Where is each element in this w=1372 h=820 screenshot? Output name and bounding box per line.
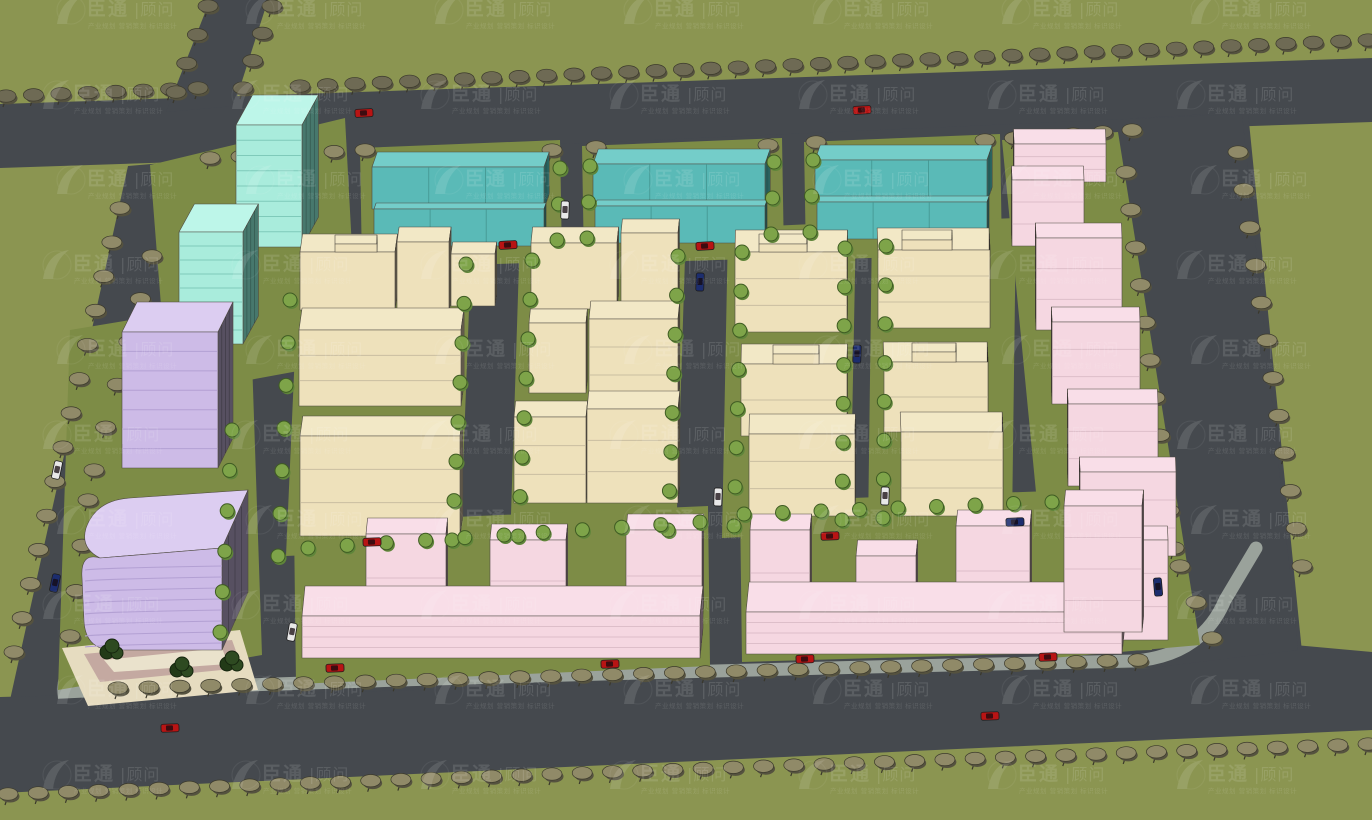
rooftop-cube-facade xyxy=(759,244,807,252)
tree-canopy xyxy=(391,773,411,785)
tree-canopy xyxy=(1328,739,1348,751)
terrace-block-roof xyxy=(1051,307,1140,322)
tree-canopy xyxy=(271,549,285,563)
tree-canopy xyxy=(166,86,186,98)
factory-block-roof xyxy=(621,219,679,233)
tree-canopy xyxy=(947,51,967,63)
workshop-hall-roof xyxy=(372,152,549,167)
car-cabin xyxy=(562,206,567,213)
tree-canopy xyxy=(1126,241,1146,253)
office-slab-roof xyxy=(122,302,233,332)
tree-canopy xyxy=(662,484,676,498)
car-cabin xyxy=(360,110,367,116)
tree-canopy xyxy=(243,54,263,66)
tree-canopy xyxy=(550,233,564,247)
tree-canopy xyxy=(1298,740,1318,752)
tree-canopy xyxy=(930,500,944,514)
rooftop-cube-facade xyxy=(773,354,819,364)
tree-canopy xyxy=(670,288,684,302)
tree-canopy xyxy=(878,317,892,331)
car xyxy=(714,488,723,506)
tree-canopy xyxy=(572,767,592,779)
site-plan-rendering: 臣通 |顾问 产业规划 营销策划 标识设计 xyxy=(0,0,1372,820)
tree-canopy xyxy=(340,538,354,552)
car-cabin xyxy=(801,656,808,661)
tree-canopy xyxy=(1045,495,1059,509)
tree-canopy xyxy=(523,292,537,306)
tree-canopy xyxy=(1331,35,1351,47)
tree-canopy xyxy=(784,759,804,771)
factory-block-roof xyxy=(299,308,464,330)
terrace-block-roof xyxy=(1013,129,1106,144)
factory-block xyxy=(531,227,619,309)
tree-canopy xyxy=(1170,560,1190,572)
rooftop-cube-roof xyxy=(902,230,952,240)
tree-canopy xyxy=(1251,296,1271,308)
tree-canopy xyxy=(803,225,817,239)
rooftop-cube xyxy=(773,345,819,364)
tree-canopy xyxy=(37,509,57,521)
factory-block-facade xyxy=(901,432,1003,516)
car xyxy=(601,660,619,669)
tree-canopy xyxy=(788,663,808,675)
tree-canopy xyxy=(215,585,229,599)
tree-canopy xyxy=(935,753,955,765)
rooftop-cube xyxy=(335,235,377,252)
terrace-block-roof xyxy=(1067,389,1158,404)
car-cabin xyxy=(701,243,708,249)
rooftop-cube-roof xyxy=(773,345,819,354)
car-cabin xyxy=(606,661,613,666)
tree-canopy xyxy=(726,665,746,677)
tree-canopy xyxy=(756,60,776,72)
tree-canopy xyxy=(603,668,623,680)
tree-canopy xyxy=(517,411,531,425)
factory-block-roof xyxy=(529,309,587,323)
tree-canopy xyxy=(61,407,81,419)
tree-canopy xyxy=(881,661,901,673)
tree-canopy xyxy=(735,245,749,259)
tree-canopy xyxy=(457,296,471,310)
car xyxy=(1153,578,1163,597)
tree-canopy xyxy=(776,506,790,520)
tree-canopy xyxy=(665,406,679,420)
factory-block-facade xyxy=(531,243,617,309)
tree-canopy xyxy=(575,523,589,537)
rooftop-cube-roof xyxy=(335,235,377,244)
tree-canopy xyxy=(943,659,963,671)
car-cabin xyxy=(1155,583,1161,590)
tree-canopy xyxy=(975,50,995,62)
tree-canopy xyxy=(84,464,104,476)
tree-canopy xyxy=(572,669,592,681)
tree-canopy xyxy=(0,788,18,800)
tree-canopy xyxy=(767,155,781,169)
tree-canopy xyxy=(78,494,98,506)
rooftop-cube-facade xyxy=(335,244,377,252)
tree-canopy xyxy=(400,75,420,87)
tree-canopy xyxy=(361,774,381,786)
tree-canopy xyxy=(1276,37,1296,49)
row-corner-tower-roof xyxy=(1064,490,1144,506)
tree-canopy xyxy=(324,145,344,157)
tree-canopy xyxy=(695,666,715,678)
tree-canopy xyxy=(1207,743,1227,755)
tree-canopy xyxy=(1122,124,1142,136)
tree-canopy xyxy=(973,658,993,670)
tree-canopy xyxy=(1116,747,1136,759)
terrace-block-roof xyxy=(1035,223,1122,238)
tree-canopy xyxy=(968,498,982,512)
tree-canopy xyxy=(1237,742,1257,754)
tree-canopy xyxy=(110,202,130,214)
tree-canopy xyxy=(1221,40,1241,52)
tree-canopy xyxy=(279,378,293,392)
tree-canopy xyxy=(519,371,533,385)
tree-canopy xyxy=(218,544,232,558)
rendering-canvas: 臣通 |顾问 产业规划 营销策划 标识设计 xyxy=(0,0,1372,820)
tree-canopy xyxy=(1146,746,1166,758)
factory-block-roof xyxy=(397,227,451,242)
tree-canopy xyxy=(1202,632,1222,644)
car xyxy=(696,242,714,251)
tree-canopy xyxy=(728,61,748,73)
tree-canopy xyxy=(766,191,780,205)
car-cabin xyxy=(986,713,993,718)
tree-canopy xyxy=(542,768,562,780)
tree-canopy xyxy=(419,533,433,547)
tree-canopy xyxy=(232,678,252,690)
tree-canopy xyxy=(1002,49,1022,61)
tree-canopy xyxy=(728,480,742,494)
tree-canopy xyxy=(701,62,721,74)
tree-canopy xyxy=(1112,44,1132,56)
tree-canopy xyxy=(12,612,32,624)
tree-canopy xyxy=(60,630,80,642)
tree-canopy xyxy=(509,70,529,82)
tree-canopy xyxy=(536,69,556,81)
tree-canopy xyxy=(837,319,851,333)
car xyxy=(355,109,373,118)
tree-canopy xyxy=(86,304,106,316)
car-cabin xyxy=(1044,654,1051,659)
car xyxy=(796,655,814,664)
car xyxy=(981,712,999,721)
tree-canopy xyxy=(225,651,239,665)
tree-canopy xyxy=(582,195,596,209)
tree-canopy xyxy=(733,323,747,337)
tree-canopy xyxy=(754,760,774,772)
tree-canopy xyxy=(175,657,189,671)
tree-canopy xyxy=(1140,354,1160,366)
car xyxy=(1039,653,1057,662)
tree-canopy xyxy=(729,441,743,455)
tree-canopy xyxy=(1228,146,1248,158)
tree-canopy xyxy=(1139,43,1159,55)
row-raised-section-roof xyxy=(856,540,918,556)
tree-canopy xyxy=(673,63,693,75)
tree-canopy xyxy=(28,543,48,555)
tree-canopy xyxy=(553,161,567,175)
tree-canopy xyxy=(213,625,227,639)
tree-canopy xyxy=(646,64,666,76)
workshop-hall-annex-roof xyxy=(374,203,546,209)
car xyxy=(161,724,179,733)
tree-canopy xyxy=(200,152,220,164)
tree-canopy xyxy=(1029,48,1049,60)
tree-canopy xyxy=(355,144,375,156)
tree-canopy xyxy=(379,536,393,550)
workshop-hall-roof xyxy=(815,145,992,160)
tree-canopy xyxy=(879,239,893,253)
tree-canopy xyxy=(20,577,40,589)
car-cabin xyxy=(715,493,720,500)
tree-canopy xyxy=(1263,372,1283,384)
tree-canopy xyxy=(417,673,437,685)
tree-canopy xyxy=(1267,741,1287,753)
workshop-hall-annex-roof xyxy=(595,200,767,206)
tree-canopy xyxy=(102,236,122,248)
tree-canopy xyxy=(850,661,870,673)
tree-canopy xyxy=(1097,655,1117,667)
tree-canopy xyxy=(865,55,885,67)
car-cabin xyxy=(504,242,511,248)
car xyxy=(561,201,570,219)
car-cabin xyxy=(882,492,887,499)
car xyxy=(881,487,890,505)
tree-canopy xyxy=(1292,560,1312,572)
rooftop-cube-facade xyxy=(902,240,952,250)
tree-canopy xyxy=(23,89,43,101)
tree-canopy xyxy=(201,679,221,691)
tree-canopy xyxy=(876,472,890,486)
tree-canopy xyxy=(0,90,16,102)
tree-canopy xyxy=(453,375,467,389)
tree-canopy xyxy=(734,284,748,298)
tree-canopy xyxy=(188,82,208,94)
tree-canopy xyxy=(252,27,272,39)
tree-canopy xyxy=(591,67,611,79)
tree-canopy xyxy=(445,533,459,547)
tree-canopy xyxy=(283,293,297,307)
tree-canopy xyxy=(177,57,197,69)
car-cabin xyxy=(166,725,173,730)
tree-canopy xyxy=(810,57,830,69)
rooftop-cube xyxy=(902,230,952,250)
tree-canopy xyxy=(210,780,230,792)
tree-canopy xyxy=(1004,657,1024,669)
tree-canopy xyxy=(198,0,218,12)
tree-canopy xyxy=(187,28,207,40)
tree-canopy xyxy=(892,54,912,66)
tree-canopy xyxy=(1066,655,1086,667)
tree-canopy xyxy=(1194,41,1214,53)
tree-canopy xyxy=(275,464,289,478)
tree-canopy xyxy=(783,59,803,71)
tree-canopy xyxy=(838,56,858,68)
tree-canopy xyxy=(912,660,932,672)
tree-canopy xyxy=(1248,39,1268,51)
tree-canopy xyxy=(4,646,24,658)
tree-canopy xyxy=(220,504,234,518)
tree-canopy xyxy=(1269,409,1289,421)
car-cabin xyxy=(368,539,375,544)
tree-canopy xyxy=(806,153,820,167)
factory-block-roof xyxy=(531,227,619,243)
tree-canopy xyxy=(223,463,237,477)
tree-canopy xyxy=(1056,749,1076,761)
tree-canopy xyxy=(386,674,406,686)
tree-canopy xyxy=(513,490,527,504)
tree-canopy xyxy=(1057,47,1077,59)
tree-canopy xyxy=(105,639,119,653)
tree-canopy xyxy=(835,474,849,488)
tree-canopy xyxy=(1130,279,1150,291)
tree-canopy xyxy=(965,752,985,764)
car xyxy=(326,664,344,673)
tree-canopy xyxy=(1177,744,1197,756)
tree-canopy xyxy=(1240,221,1260,233)
tree-canopy xyxy=(1280,485,1300,497)
tree-canopy xyxy=(449,454,463,468)
factory-block-roof xyxy=(587,391,680,409)
tree-canopy xyxy=(757,664,777,676)
tree-canopy xyxy=(836,396,850,410)
tree-canopy xyxy=(179,781,199,793)
workshop-hall-roof xyxy=(593,149,770,164)
car xyxy=(499,241,517,250)
tree-canopy xyxy=(69,373,89,385)
tree-canopy xyxy=(1303,36,1323,48)
tree-canopy xyxy=(580,231,594,245)
tree-canopy xyxy=(1128,654,1148,666)
tree-canopy xyxy=(372,76,392,88)
tree-canopy xyxy=(619,66,639,78)
tree-canopy xyxy=(564,68,584,80)
tree-canopy xyxy=(1084,46,1104,58)
tree-canopy xyxy=(301,541,315,555)
tree-canopy xyxy=(1026,750,1046,762)
tree-canopy xyxy=(975,134,995,146)
tree-canopy xyxy=(764,227,778,241)
factory-block-roof xyxy=(589,301,680,319)
tree-canopy xyxy=(1166,42,1186,54)
tree-canopy xyxy=(819,662,839,674)
tree-canopy xyxy=(1086,748,1106,760)
tree-canopy xyxy=(583,159,597,173)
car-cabin xyxy=(331,665,338,670)
car xyxy=(821,532,839,541)
terrace-block-roof xyxy=(1079,457,1176,472)
tree-canopy xyxy=(730,402,744,416)
tree-canopy xyxy=(920,53,940,65)
tree-canopy xyxy=(1121,203,1141,215)
tree-canopy xyxy=(877,394,891,408)
